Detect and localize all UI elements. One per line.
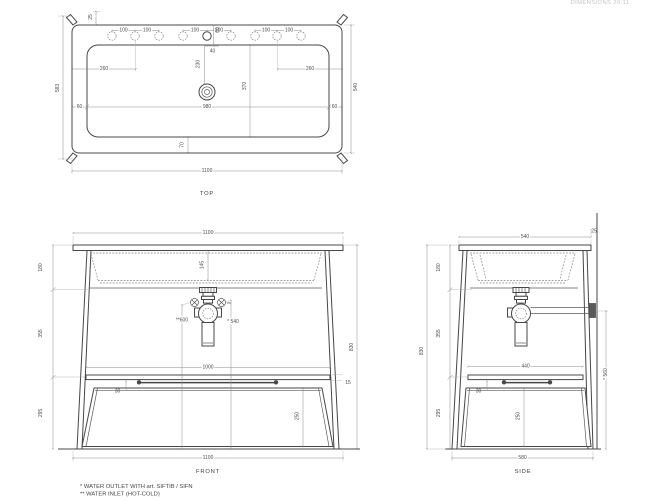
dim-shelf-depth: 440 [521,364,530,370]
countertop-side [459,245,591,251]
dim-shelf-gap: 30 [115,389,121,395]
footnote-water-inlet: ** WATER INLET (HOT-COLD) [80,492,160,498]
dim-wall-gap: 25 [591,229,597,235]
leg-left-outer [77,251,87,450]
dim-panel-height: 250 [295,412,301,421]
water-inlet-right-icon [218,299,226,307]
dim-front-top-width: 1100 [203,230,214,236]
dim-depth-right: 540 [353,83,359,92]
dim-wall-outlet-height: * 560 [603,368,609,380]
basin-hidden-front [90,253,322,288]
dim-hole-pitch: 100 [285,28,294,34]
side-view-geometry [445,213,601,449]
dim-side-total-height: 830 [419,347,425,356]
shelf-front [86,375,330,380]
dim-side-seg-top: 180 [436,263,442,272]
side-view: 540 25 440 30 250 * 560 180 355 [419,213,609,475]
rail-knob-front [502,380,506,384]
corner-tab-bottom-left [67,153,78,164]
dim-water-inlet-height: **600 [176,318,188,324]
wall-outlet-flange [589,304,596,318]
dim-depth-left: 583 [55,84,61,93]
dim-rim-right: 60 [332,104,338,110]
siphon-front [195,288,222,347]
dim-front-basin-depth: 145 [200,261,206,270]
dim-front-bottom-width: 1100 [203,455,214,461]
dim-faucet-offset: 60 [215,27,221,33]
dim-side-bottom-depth: 580 [518,455,527,461]
corner-tab-bottom-right [337,153,348,164]
dim-basin-depth: 370 [242,82,248,91]
dim-hole-pitch: 100 [143,28,152,34]
dim-seg-middle: 355 [38,329,44,338]
technical-drawing-page: DIMENSIONS 20.11 [0,0,667,500]
basin-outline [87,45,329,137]
dim-side-panel-height: 250 [516,412,522,421]
dim-total-height: 830 [349,343,355,352]
rail-knob-left [137,380,141,384]
dim-faucet-to-drain: 230 [196,60,202,69]
shelf-side [468,375,583,380]
leg-front-outer [452,251,463,450]
dim-overall-width: 1100 [202,168,213,174]
leg-right-outer [329,251,339,450]
faucet-hole [203,32,211,40]
dim-side-seg-bottom: 295 [436,409,442,418]
dim-water-outlet-height: * 540 [227,319,239,325]
top-view: 100 100 100 100 100 100 25 60 40 230 260… [55,12,359,198]
water-inlet-left-icon [191,299,199,307]
washbasin-technical-drawing: DIMENSIONS 20.11 [0,0,667,500]
sheet-header-note: DIMENSIONS 20.11 [571,0,630,6]
dim-side-seg-middle: 355 [436,329,442,338]
front-view: ** 1100 145 **600 * 540 [38,230,360,475]
dim-hole-pitch: 100 [262,28,271,34]
dim-hole-pitch: 100 [191,28,200,34]
rail-knob-back [548,380,552,384]
corner-tab-top-right [337,15,348,26]
basin-hidden-side [470,253,578,288]
front-view-geometry: ** [58,245,360,449]
front-view-label: FRONT [196,469,220,475]
dim-side-top-depth: 540 [521,234,530,240]
dim-faucet-to-basin: 40 [210,49,216,55]
dim-seg-top: 180 [38,263,44,272]
top-view-geometry [67,15,348,164]
side-view-label: SIDE [515,469,532,475]
dim-corner-tab: 25 [88,14,94,20]
dim-rim-left: 60 [77,104,83,110]
inlet-mark: ** [227,302,231,308]
dim-hole-pitch: 100 [119,28,128,34]
top-view-label: TOP [200,191,214,197]
dim-shelf-width: 1000 [202,365,213,371]
rail-knob-right [274,380,278,384]
siphon-side [508,288,596,347]
countertop-front [73,245,343,251]
panel-side [461,388,591,447]
dim-side-shelf-gap: 30 [476,389,482,395]
dim-holes-group-right: 260 [306,66,315,72]
dim-holes-group-left: 260 [100,66,109,72]
dim-basin-front: 70 [180,142,186,148]
footnote-water-outlet: * WATER OUTLET WITH art. SIFTIB / SIFN [80,484,193,490]
dim-seg-bottom: 295 [38,409,44,418]
dim-basin-width: 980 [203,104,212,110]
dim-top-thickness: 15 [345,380,351,386]
